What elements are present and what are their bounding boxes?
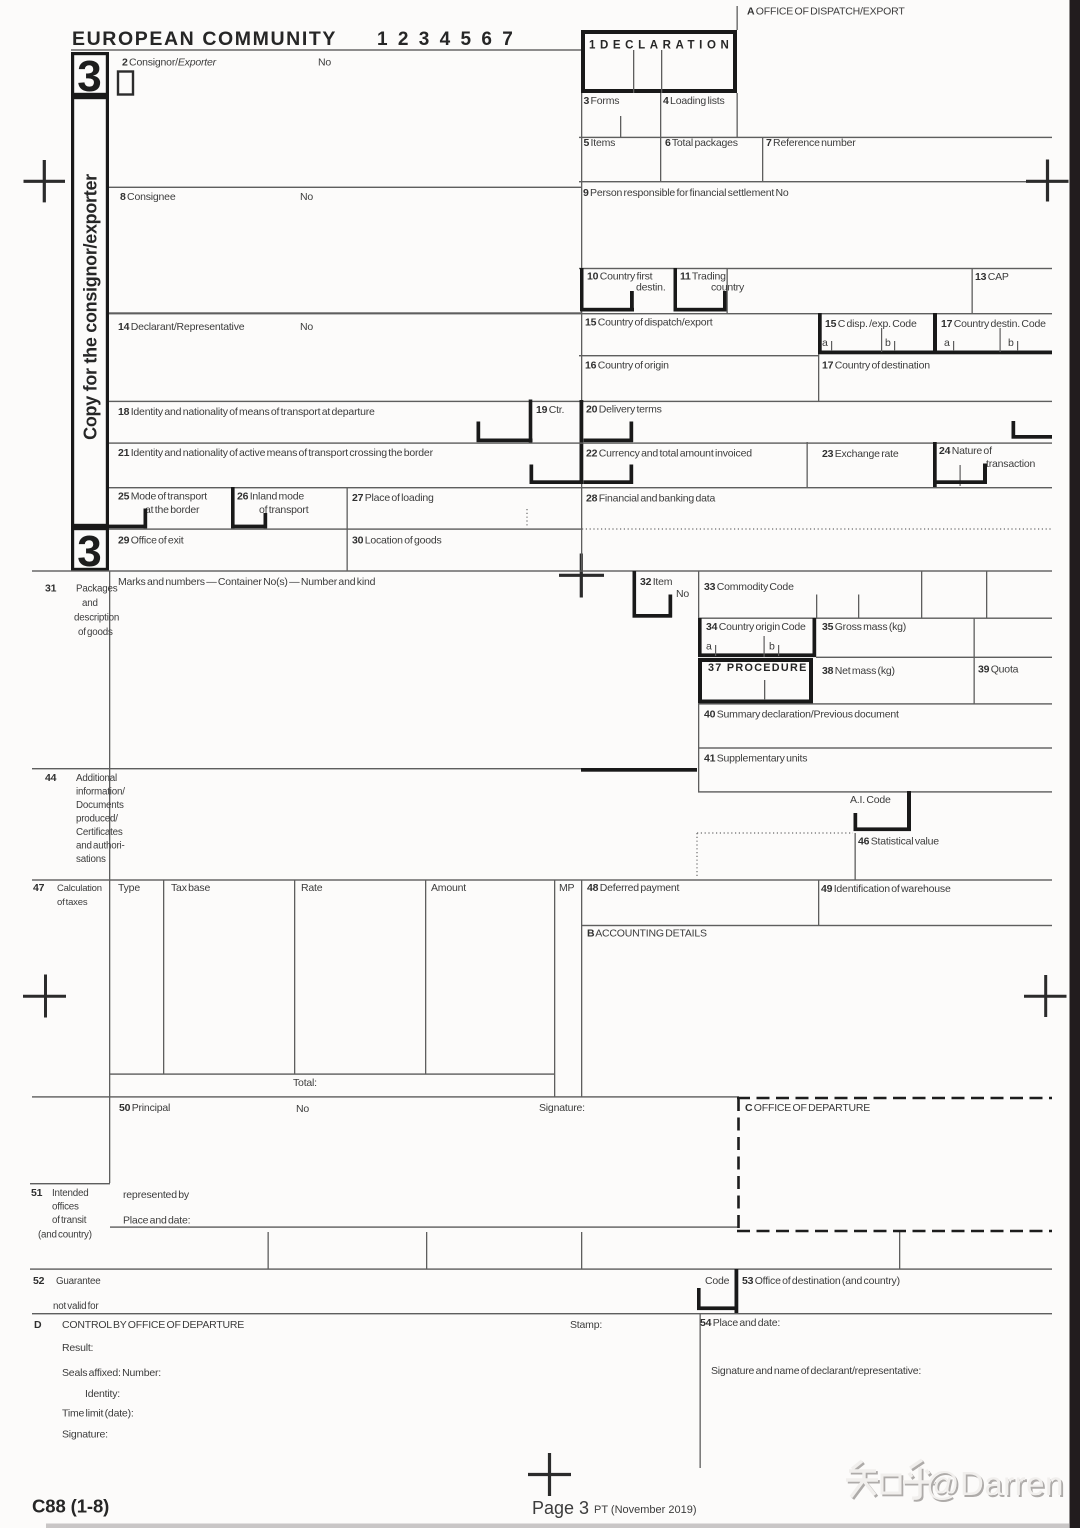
- svg-text:Stamp:: Stamp:: [570, 1319, 602, 1331]
- svg-text:35 Gross mass (kg): 35 Gross mass (kg): [822, 621, 906, 633]
- svg-text:C88 (1-8): C88 (1-8): [32, 1496, 109, 1517]
- svg-text:4 Loading lists: 4 Loading lists: [663, 95, 725, 107]
- svg-text:CONTROL BY OFFICE OF DEPARTURE: CONTROL BY OFFICE OF DEPARTURE: [62, 1319, 244, 1331]
- svg-text:country: country: [711, 282, 745, 294]
- svg-text:of transit: of transit: [52, 1215, 87, 1226]
- svg-text:41 Supplementary units: 41 Supplementary units: [704, 753, 807, 765]
- svg-text:Additional: Additional: [76, 773, 117, 784]
- svg-text:of goods: of goods: [78, 627, 113, 638]
- svg-text:16 Country of origin: 16 Country of origin: [585, 360, 669, 372]
- svg-text:18 Identity and nationality of: 18 Identity and nationality of means of …: [118, 406, 375, 418]
- svg-text:Rate: Rate: [301, 882, 323, 894]
- svg-text:31: 31: [45, 583, 57, 595]
- svg-text:transaction: transaction: [986, 458, 1036, 470]
- svg-text:D: D: [34, 1319, 42, 1331]
- svg-text:Packages: Packages: [76, 584, 118, 595]
- svg-text:Intended: Intended: [52, 1188, 89, 1199]
- svg-text:Documents: Documents: [76, 800, 124, 811]
- svg-text:Identity:: Identity:: [85, 1388, 120, 1400]
- svg-text:No: No: [676, 588, 689, 600]
- svg-text:Result:: Result:: [62, 1342, 93, 1354]
- svg-text:Place and date:: Place and date:: [123, 1215, 190, 1227]
- svg-text:32 Item: 32 Item: [640, 576, 673, 588]
- svg-text:27 Place of loading: 27 Place of loading: [352, 492, 434, 504]
- svg-text:not valid for: not valid for: [53, 1301, 99, 1312]
- svg-text:EUROPEAN COMMUNITY: EUROPEAN COMMUNITY: [72, 28, 337, 50]
- svg-text:46 Statistical value: 46 Statistical value: [858, 836, 939, 848]
- svg-text:38 Net mass (kg): 38 Net mass (kg): [822, 665, 895, 677]
- svg-text:Certificates: Certificates: [76, 827, 123, 838]
- svg-text:1DECLARATION: 1DECLARATION: [589, 40, 733, 52]
- svg-text:description: description: [74, 613, 119, 624]
- svg-text:37 PROCEDURE: 37 PROCEDURE: [708, 662, 808, 674]
- svg-text:54 Place and date:: 54 Place and date:: [700, 1317, 780, 1329]
- svg-text:Signature:: Signature:: [539, 1102, 585, 1114]
- svg-text:represented by: represented by: [123, 1189, 190, 1201]
- svg-text:B ACCOUNTING DETAILS: B ACCOUNTING DETAILS: [587, 928, 707, 940]
- svg-text:39 Quota: 39 Quota: [978, 664, 1019, 676]
- svg-text:17 Country of destination: 17 Country of destination: [822, 360, 930, 372]
- svg-text:14 Declarant/Representative: 14 Declarant/Representative: [118, 321, 245, 333]
- svg-text:33 Commodity Code: 33 Commodity Code: [704, 581, 794, 593]
- svg-text:b: b: [885, 337, 891, 349]
- svg-text:and authori-: and authori-: [76, 841, 125, 852]
- svg-text:Marks and numbers — Container: Marks and numbers — Container No(s) — Nu…: [118, 576, 376, 588]
- svg-text:Type: Type: [118, 882, 140, 894]
- svg-text:5 Items: 5 Items: [584, 137, 616, 149]
- svg-text:No: No: [300, 191, 313, 203]
- svg-text:No: No: [318, 57, 331, 69]
- svg-text:29 Office of exit: 29 Office of exit: [118, 535, 184, 547]
- svg-text:PT (November 2019): PT (November 2019): [594, 1504, 697, 1516]
- svg-text:34 Country origin Code: 34 Country origin Code: [706, 621, 806, 633]
- svg-text:a: a: [944, 337, 950, 349]
- svg-text:51: 51: [31, 1187, 43, 1199]
- svg-text:a: a: [822, 337, 828, 349]
- svg-text:22 Currency and total amount i: 22 Currency and total amount invoiced: [586, 448, 752, 460]
- svg-text:(and country): (and country): [38, 1230, 92, 1241]
- svg-text:7 Reference number: 7 Reference number: [766, 137, 856, 149]
- svg-text:15 Country of dispatch/export: 15 Country of dispatch/export: [585, 317, 713, 329]
- svg-text:Signature and name of declaran: Signature and name of declarant/represen…: [711, 1365, 921, 1377]
- svg-text:25 Mode of transport: 25 Mode of transport: [118, 491, 207, 503]
- svg-text:a: a: [706, 641, 712, 653]
- svg-text:1234567: 1234567: [377, 29, 523, 50]
- svg-text:52: 52: [33, 1275, 45, 1287]
- svg-text:C OFFICE OF DEPARTURE: C OFFICE OF DEPARTURE: [745, 1102, 870, 1114]
- svg-text:of taxes: of taxes: [57, 897, 88, 908]
- svg-text:Page 3: Page 3: [532, 1498, 589, 1518]
- svg-text:23 Exchange rate: 23 Exchange rate: [822, 448, 899, 460]
- svg-text:19 Ctr.: 19 Ctr.: [536, 404, 564, 416]
- svg-text:at the border: at the border: [145, 504, 200, 516]
- svg-text:44: 44: [45, 772, 57, 784]
- svg-text:3: 3: [77, 527, 101, 576]
- svg-text:48 Deferred payment: 48 Deferred payment: [587, 882, 680, 894]
- svg-text:No: No: [300, 321, 313, 333]
- svg-text:40 Summary declaration/Previou: 40 Summary declaration/Previous document: [704, 709, 899, 721]
- svg-text:3 Forms: 3 Forms: [584, 95, 620, 107]
- svg-text:8 Consignee: 8 Consignee: [120, 191, 176, 203]
- svg-text:A.I. Code: A.I. Code: [850, 794, 891, 806]
- svg-text:b: b: [1008, 337, 1014, 349]
- svg-text:Copy for the consignor/exporte: Copy for the consignor/exporter: [81, 174, 101, 440]
- svg-text:13 CAP: 13 CAP: [975, 271, 1009, 283]
- svg-text:26 Inland mode: 26 Inland mode: [237, 491, 304, 503]
- svg-text:49 Identification of warehouse: 49 Identification of warehouse: [821, 883, 951, 895]
- svg-text:MP: MP: [559, 882, 575, 894]
- svg-text:2 Consignor/Exporter: 2 Consignor/Exporter: [122, 57, 217, 69]
- svg-text:50 Principal: 50 Principal: [119, 1102, 170, 1114]
- svg-text:Guarantee: Guarantee: [56, 1276, 101, 1287]
- svg-text:Amount: Amount: [431, 882, 466, 894]
- svg-text:Seals affixed: Number:: Seals affixed: Number:: [62, 1367, 161, 1379]
- svg-text:30 Location of goods: 30 Location of goods: [352, 535, 442, 547]
- svg-text:destin.: destin.: [636, 282, 666, 294]
- svg-text:53 Office of destination (and: 53 Office of destination (and country): [742, 1275, 900, 1287]
- svg-text:3: 3: [77, 52, 101, 101]
- svg-text:Calculation: Calculation: [57, 883, 102, 894]
- svg-text:Tax base: Tax base: [171, 882, 210, 894]
- svg-text:Total:: Total:: [293, 1077, 317, 1089]
- svg-text:6 Total packages: 6 Total packages: [665, 137, 738, 149]
- svg-text:A OFFICE OF DISPATCH/EXPORT: A OFFICE OF DISPATCH/EXPORT: [747, 6, 905, 18]
- svg-text:produced/: produced/: [76, 814, 118, 825]
- svg-text:and: and: [82, 598, 98, 609]
- svg-text:47: 47: [33, 882, 45, 894]
- svg-text:sations: sations: [76, 854, 106, 865]
- svg-text:15 C disp. /exp. Code: 15 C disp. /exp. Code: [825, 318, 917, 330]
- svg-text:@Darren: @Darren: [926, 1465, 1064, 1502]
- svg-text:b: b: [769, 641, 775, 653]
- svg-text:24 Nature of: 24 Nature of: [939, 445, 992, 457]
- svg-text:information/: information/: [76, 787, 125, 798]
- svg-text:Code: Code: [705, 1275, 730, 1287]
- svg-text:20 Delivery terms: 20 Delivery terms: [586, 404, 662, 416]
- svg-text:Time limit (date):: Time limit (date):: [62, 1408, 134, 1420]
- svg-text:21 Identity and nationality of: 21 Identity and nationality of active me…: [118, 447, 434, 459]
- svg-text:Signature:: Signature:: [62, 1429, 108, 1441]
- svg-text:9 Person responsible for finan: 9 Person responsible for financial settl…: [583, 187, 789, 199]
- svg-text:28 Financial and banking data: 28 Financial and banking data: [586, 493, 715, 505]
- svg-text:17 Country destin. Code: 17 Country destin. Code: [941, 318, 1046, 330]
- svg-text:No: No: [296, 1103, 309, 1115]
- svg-text:offices: offices: [52, 1202, 79, 1213]
